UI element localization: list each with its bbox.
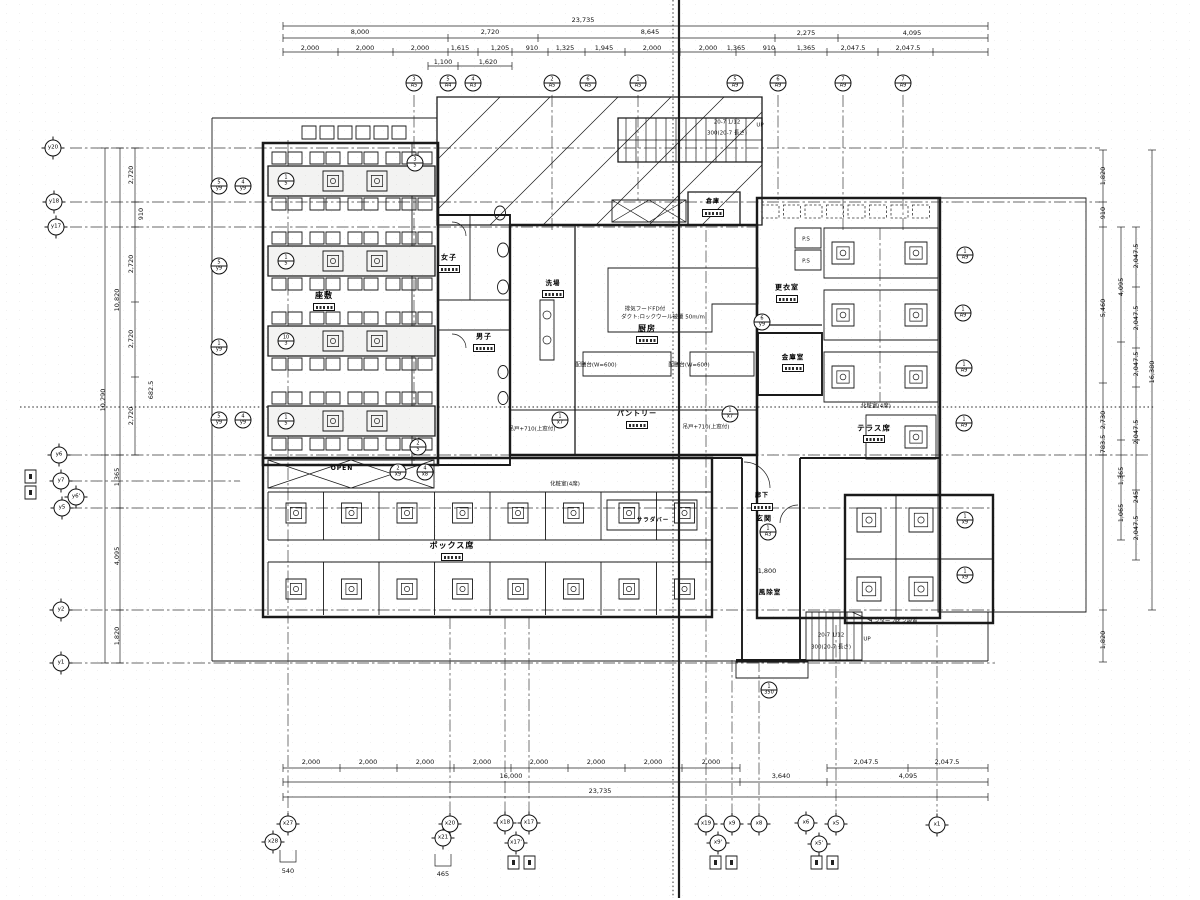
dim-label: 2,000 [416, 759, 435, 766]
dim-label: 2,047.5 [1133, 352, 1140, 377]
dim-label: 465 [437, 871, 449, 878]
note-label: 化粧室(4席) [861, 404, 891, 410]
grid-bubble: x28 [265, 834, 282, 851]
grid-bubble: y6 [51, 447, 68, 464]
dim-label: 1,365 [727, 45, 746, 52]
dim-label: 4,095 [114, 547, 121, 566]
dim-label: 1,800 [758, 568, 777, 575]
dim-label: 2,047.5 [1133, 420, 1140, 445]
grid-bubble: 1x7 [722, 406, 739, 423]
room-label: 倉庫 [706, 199, 720, 205]
room-label: 厨房 [638, 325, 656, 333]
level-tag [636, 336, 658, 344]
grid-bubble: 35 [407, 155, 424, 172]
grid-bubble: 4x8 [417, 464, 434, 481]
grid-bubble: y5 [54, 500, 71, 517]
dim-label: 2,000 [301, 45, 320, 52]
grid-bubble: 5y9 [211, 258, 228, 275]
dim-label: 2,047.5 [1133, 516, 1140, 541]
dim-label: 2,720 [128, 330, 135, 349]
grid-bubble: 1A9 [957, 247, 974, 264]
dim-label: 1,100 [434, 59, 453, 66]
grid-bubble: y1 [53, 655, 70, 672]
level-tag [438, 265, 460, 273]
grid-bubble: x9 [724, 816, 741, 833]
note-label: P.S [802, 259, 810, 265]
dim-label: 2,000 [411, 45, 430, 52]
grid-bubble: 1A5 [630, 75, 647, 92]
dim-label: 2,720 [128, 166, 135, 185]
dim-label: 2,000 [473, 759, 492, 766]
note-label: 吊戸+710(上窓付) [683, 425, 730, 431]
grid-bubble: 7A9 [835, 75, 852, 92]
room-label: 女子 [441, 255, 457, 262]
dim-label: 1,620 [479, 59, 498, 66]
dim-label: 2,000 [356, 45, 375, 52]
grid-bubble: 1x7 [552, 412, 569, 429]
dim-label: 1,820 [1100, 167, 1107, 186]
dim-label: 2,730 [1100, 411, 1107, 430]
floor-plan-page: 23,7358,0002,7208,6452,2754,0952,0002,00… [0, 0, 1200, 900]
note-label: 20-7 1/12 [818, 633, 845, 639]
dim-label: 2,047.5 [1133, 306, 1140, 331]
dim-label: 1,365 [114, 468, 121, 487]
dim-label: 4,095 [899, 773, 918, 780]
grid-bubble: 5A4 [440, 75, 457, 92]
grid-bubble: x1 [929, 817, 946, 834]
grid-bubble: 103 [278, 333, 295, 350]
dim-label: 2,720 [128, 407, 135, 426]
room-label: テラス席 [857, 424, 891, 432]
dim-label: 1,325 [556, 45, 575, 52]
room-label: 更衣室 [775, 285, 799, 292]
dim-label: 2,000 [643, 45, 662, 52]
dim-label: 2,047.5 [1133, 244, 1140, 269]
level-tag [542, 290, 564, 298]
room-label: 座敷 [315, 292, 333, 300]
dim-label: 2,275 [797, 30, 816, 37]
note-label: 吊戸+710(上窓付) [509, 427, 556, 433]
grid-bubble: 15 [278, 253, 295, 270]
grid-bubble: 1A9 [956, 360, 973, 377]
grid-bubble: 1350 [761, 682, 778, 699]
level-tag [782, 364, 804, 372]
grid-bubble: 15 [278, 413, 295, 430]
note-label: 配膳台(W=600) [668, 363, 709, 369]
room-label: 風除室 [759, 589, 782, 596]
dim-label: 2,047.5 [935, 759, 960, 766]
dim-label: 16,000 [500, 773, 523, 780]
grid-bubble: 1A9 [956, 415, 973, 432]
room-label: 玄関 [756, 516, 772, 523]
dim-label: 23,735 [589, 788, 612, 795]
dim-label: 8,000 [351, 29, 370, 36]
dim-label: 1,820 [1100, 631, 1107, 650]
dim-label: 1,205 [491, 45, 510, 52]
grid-bubble: x5' [811, 836, 828, 853]
level-tag [441, 553, 463, 561]
room-label: 金庫室 [782, 354, 805, 361]
grid-bubble: 1A9 [955, 305, 972, 322]
room-label: OPEN [331, 466, 354, 472]
dim-label: 2,720 [128, 255, 135, 274]
dim-label: 1,365 [1118, 467, 1125, 486]
note-label: 化粧室(4席) [550, 482, 580, 488]
grid-bubble: y18 [46, 194, 63, 211]
dim-label: 1,615 [451, 45, 470, 52]
dim-label: 910 [763, 45, 775, 52]
level-tag [313, 303, 335, 311]
grid-bubble: 1A3 [760, 524, 777, 541]
grid-bubble: 1x9 [957, 512, 974, 529]
grid-bubble: 6y9 [754, 314, 771, 331]
note-label: 排気フードFD付 [625, 307, 665, 313]
note-label: 配膳台(W=600) [575, 363, 616, 369]
dim-label: 3,640 [772, 773, 791, 780]
level-tag [702, 209, 724, 217]
dim-label: 910 [1100, 207, 1107, 219]
dim-label: 783.5 [1100, 435, 1107, 454]
dim-label: 2,047.5 [896, 45, 921, 52]
dim-label: 23,735 [572, 17, 595, 24]
grid-bubble: y17 [48, 219, 65, 236]
annotation-layer: 23,7358,0002,7208,6452,2754,0952,0002,00… [0, 0, 1200, 900]
grid-bubble: x6 [798, 815, 815, 832]
dim-label: 1,945 [595, 45, 614, 52]
grid-bubble: 1x9 [957, 567, 974, 584]
note-label: 20-7 1/12 [714, 120, 741, 126]
room-label: 男子 [476, 334, 492, 341]
dim-label: 4,095 [1118, 278, 1125, 297]
room-label: 廊下 [755, 493, 769, 499]
dim-label: 4,095 [903, 30, 922, 37]
room-label: 洗場 [546, 280, 561, 287]
grid-bubble: 6A9 [770, 75, 787, 92]
grid-bubble: 5y9 [211, 178, 228, 195]
dim-label: 2,000 [359, 759, 378, 766]
dim-label: 10,290 [100, 389, 107, 412]
grid-bubble: y6' [68, 489, 85, 506]
note-label: P.S [802, 237, 810, 243]
grid-bubble: x5 [828, 816, 845, 833]
dim-label: 1,065 [1118, 504, 1125, 523]
dim-label: 540 [282, 868, 294, 875]
grid-bubble: 4y9 [235, 412, 252, 429]
grid-bubble: x20 [442, 816, 459, 833]
room-label: パントリー [617, 411, 657, 418]
dim-label: 2,000 [530, 759, 549, 766]
grid-bubble: x9' [710, 835, 727, 852]
grid-bubble: 3A5 [406, 75, 423, 92]
dim-label: 682.5 [148, 381, 155, 400]
grid-bubble: x17' [508, 835, 525, 852]
grid-bubble: 1y9 [211, 339, 228, 356]
grid-bubble: 15 [278, 173, 295, 190]
note-label: 300(20-7 長さ) [811, 645, 851, 651]
dim-label: 2,000 [587, 759, 606, 766]
dim-label: 2,000 [702, 759, 721, 766]
dim-label: 8,645 [641, 29, 660, 36]
dim-label: 2,000 [302, 759, 321, 766]
level-tag [776, 295, 798, 303]
grid-bubble: x18 [497, 815, 514, 832]
grid-bubble: y7 [53, 473, 70, 490]
grid-bubble: y20 [45, 140, 62, 157]
dim-label: 1,365 [797, 45, 816, 52]
dim-label: 5,460 [1100, 299, 1107, 318]
grid-bubble: x17 [521, 815, 538, 832]
dim-label: 1,820 [114, 627, 121, 646]
note-label: UP [863, 637, 870, 643]
grid-bubble: 7A9 [895, 75, 912, 92]
grid-bubble: x8 [751, 816, 768, 833]
grid-bubble: 4y9 [235, 178, 252, 195]
grid-bubble: x19 [698, 816, 715, 833]
grid-bubble: 25 [410, 439, 427, 456]
note-label: UP [756, 123, 763, 129]
room-label: サラダバー [637, 518, 670, 524]
dim-label: 10,820 [114, 289, 121, 312]
level-tag [473, 344, 495, 352]
dim-label: 245 [1133, 491, 1140, 503]
dim-label: 2,047.5 [841, 45, 866, 52]
grid-bubble: y2 [53, 602, 70, 619]
dim-label: 2,000 [699, 45, 718, 52]
level-tag [751, 503, 773, 511]
note-label: ダクト:ロックウール被覆 50m/m [621, 315, 705, 321]
dim-label: 2,000 [644, 759, 663, 766]
dim-label: 910 [138, 208, 145, 220]
dim-label: 16,380 [1149, 361, 1156, 384]
grid-bubble: 2A5 [544, 75, 561, 92]
grid-bubble: 5A9 [727, 75, 744, 92]
level-tag [863, 435, 885, 443]
level-tag [626, 421, 648, 429]
grid-bubble: 6A5 [580, 75, 597, 92]
dim-label: 2,047.5 [854, 759, 879, 766]
room-label: ボックス席 [430, 542, 475, 550]
grid-bubble: 2x9 [390, 464, 407, 481]
grid-bubble: 4A3 [465, 75, 482, 92]
note-label: 300(20-7 長さ) [707, 131, 747, 137]
grid-bubble: x27 [280, 816, 297, 833]
note-label: インターフォン設置 [868, 619, 917, 625]
dim-label: 2,720 [481, 29, 500, 36]
dim-label: 910 [526, 45, 538, 52]
grid-bubble: 5y9 [211, 412, 228, 429]
